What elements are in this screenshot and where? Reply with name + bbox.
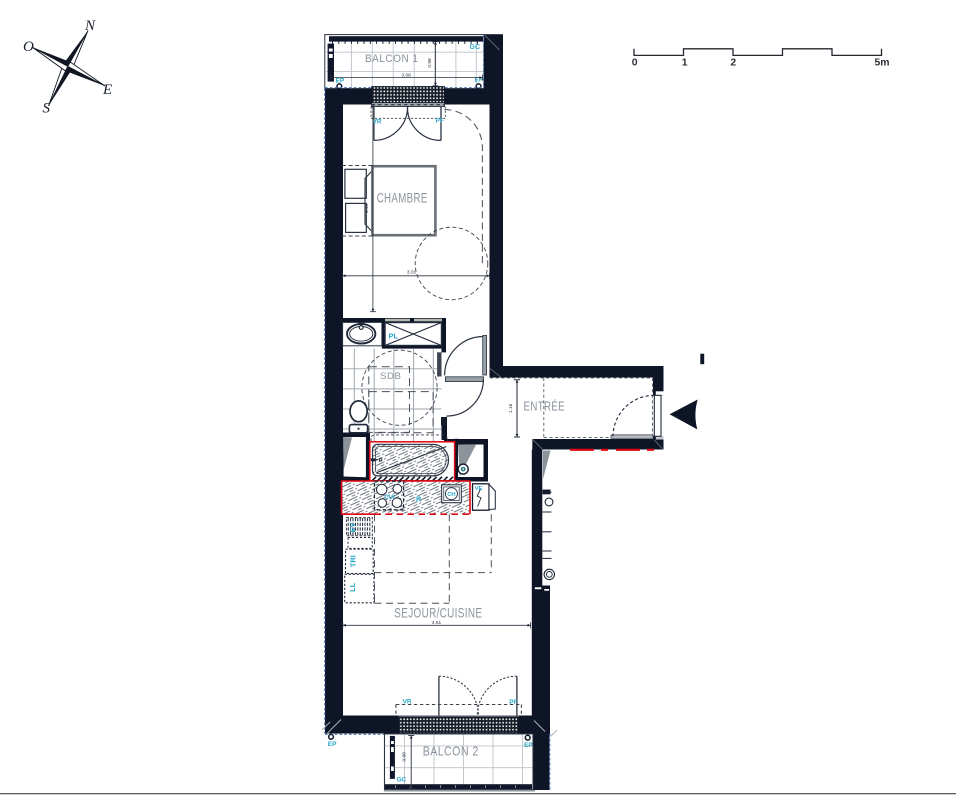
svg-text:CUI: CUI (384, 495, 395, 501)
svg-text:EV: EV (348, 522, 357, 532)
svg-text:0.98: 0.98 (402, 752, 408, 762)
svg-text:TRI: TRI (349, 555, 358, 567)
svg-text:PL: PL (389, 332, 399, 341)
svg-text:VR: VR (373, 119, 382, 126)
svg-text:R: R (416, 495, 422, 504)
svg-text:N: N (84, 18, 96, 34)
svg-text:EP: EP (328, 741, 337, 748)
svg-text:5m: 5m (874, 57, 889, 68)
svg-text:4.19: 4.19 (364, 203, 370, 213)
svg-text:1: 1 (682, 57, 688, 68)
svg-text:2: 2 (730, 57, 736, 68)
svg-text:S: S (43, 101, 51, 117)
svg-text:0: 0 (632, 57, 638, 68)
svg-text:3.01: 3.01 (407, 270, 417, 276)
svg-text:SEJOUR/CUISINE: SEJOUR/CUISINE (394, 604, 482, 620)
svg-text:1.16: 1.16 (508, 403, 514, 413)
svg-text:PF: PF (509, 699, 517, 706)
svg-text:O: O (23, 39, 34, 55)
svg-text:4.61: 4.61 (432, 620, 442, 626)
svg-text:VR: VR (403, 699, 412, 706)
svg-text:EP: EP (524, 742, 533, 749)
svg-text:VE: VE (475, 486, 483, 492)
svg-text:BALCON 1: BALCON 1 (365, 53, 419, 65)
svg-text:PF: PF (436, 118, 444, 125)
svg-text:3.08: 3.08 (402, 72, 412, 78)
svg-text:GC: GC (397, 777, 407, 784)
svg-text:LL: LL (348, 582, 357, 592)
svg-text:CHAMBRE: CHAMBRE (377, 190, 428, 205)
svg-text:BALCON 2: BALCON 2 (423, 744, 479, 759)
svg-text:CH: CH (447, 492, 455, 498)
svg-text:0.98: 0.98 (427, 58, 433, 68)
svg-text:GC: GC (470, 44, 481, 51)
svg-text:SDB: SDB (380, 371, 402, 381)
svg-text:E: E (102, 82, 112, 98)
